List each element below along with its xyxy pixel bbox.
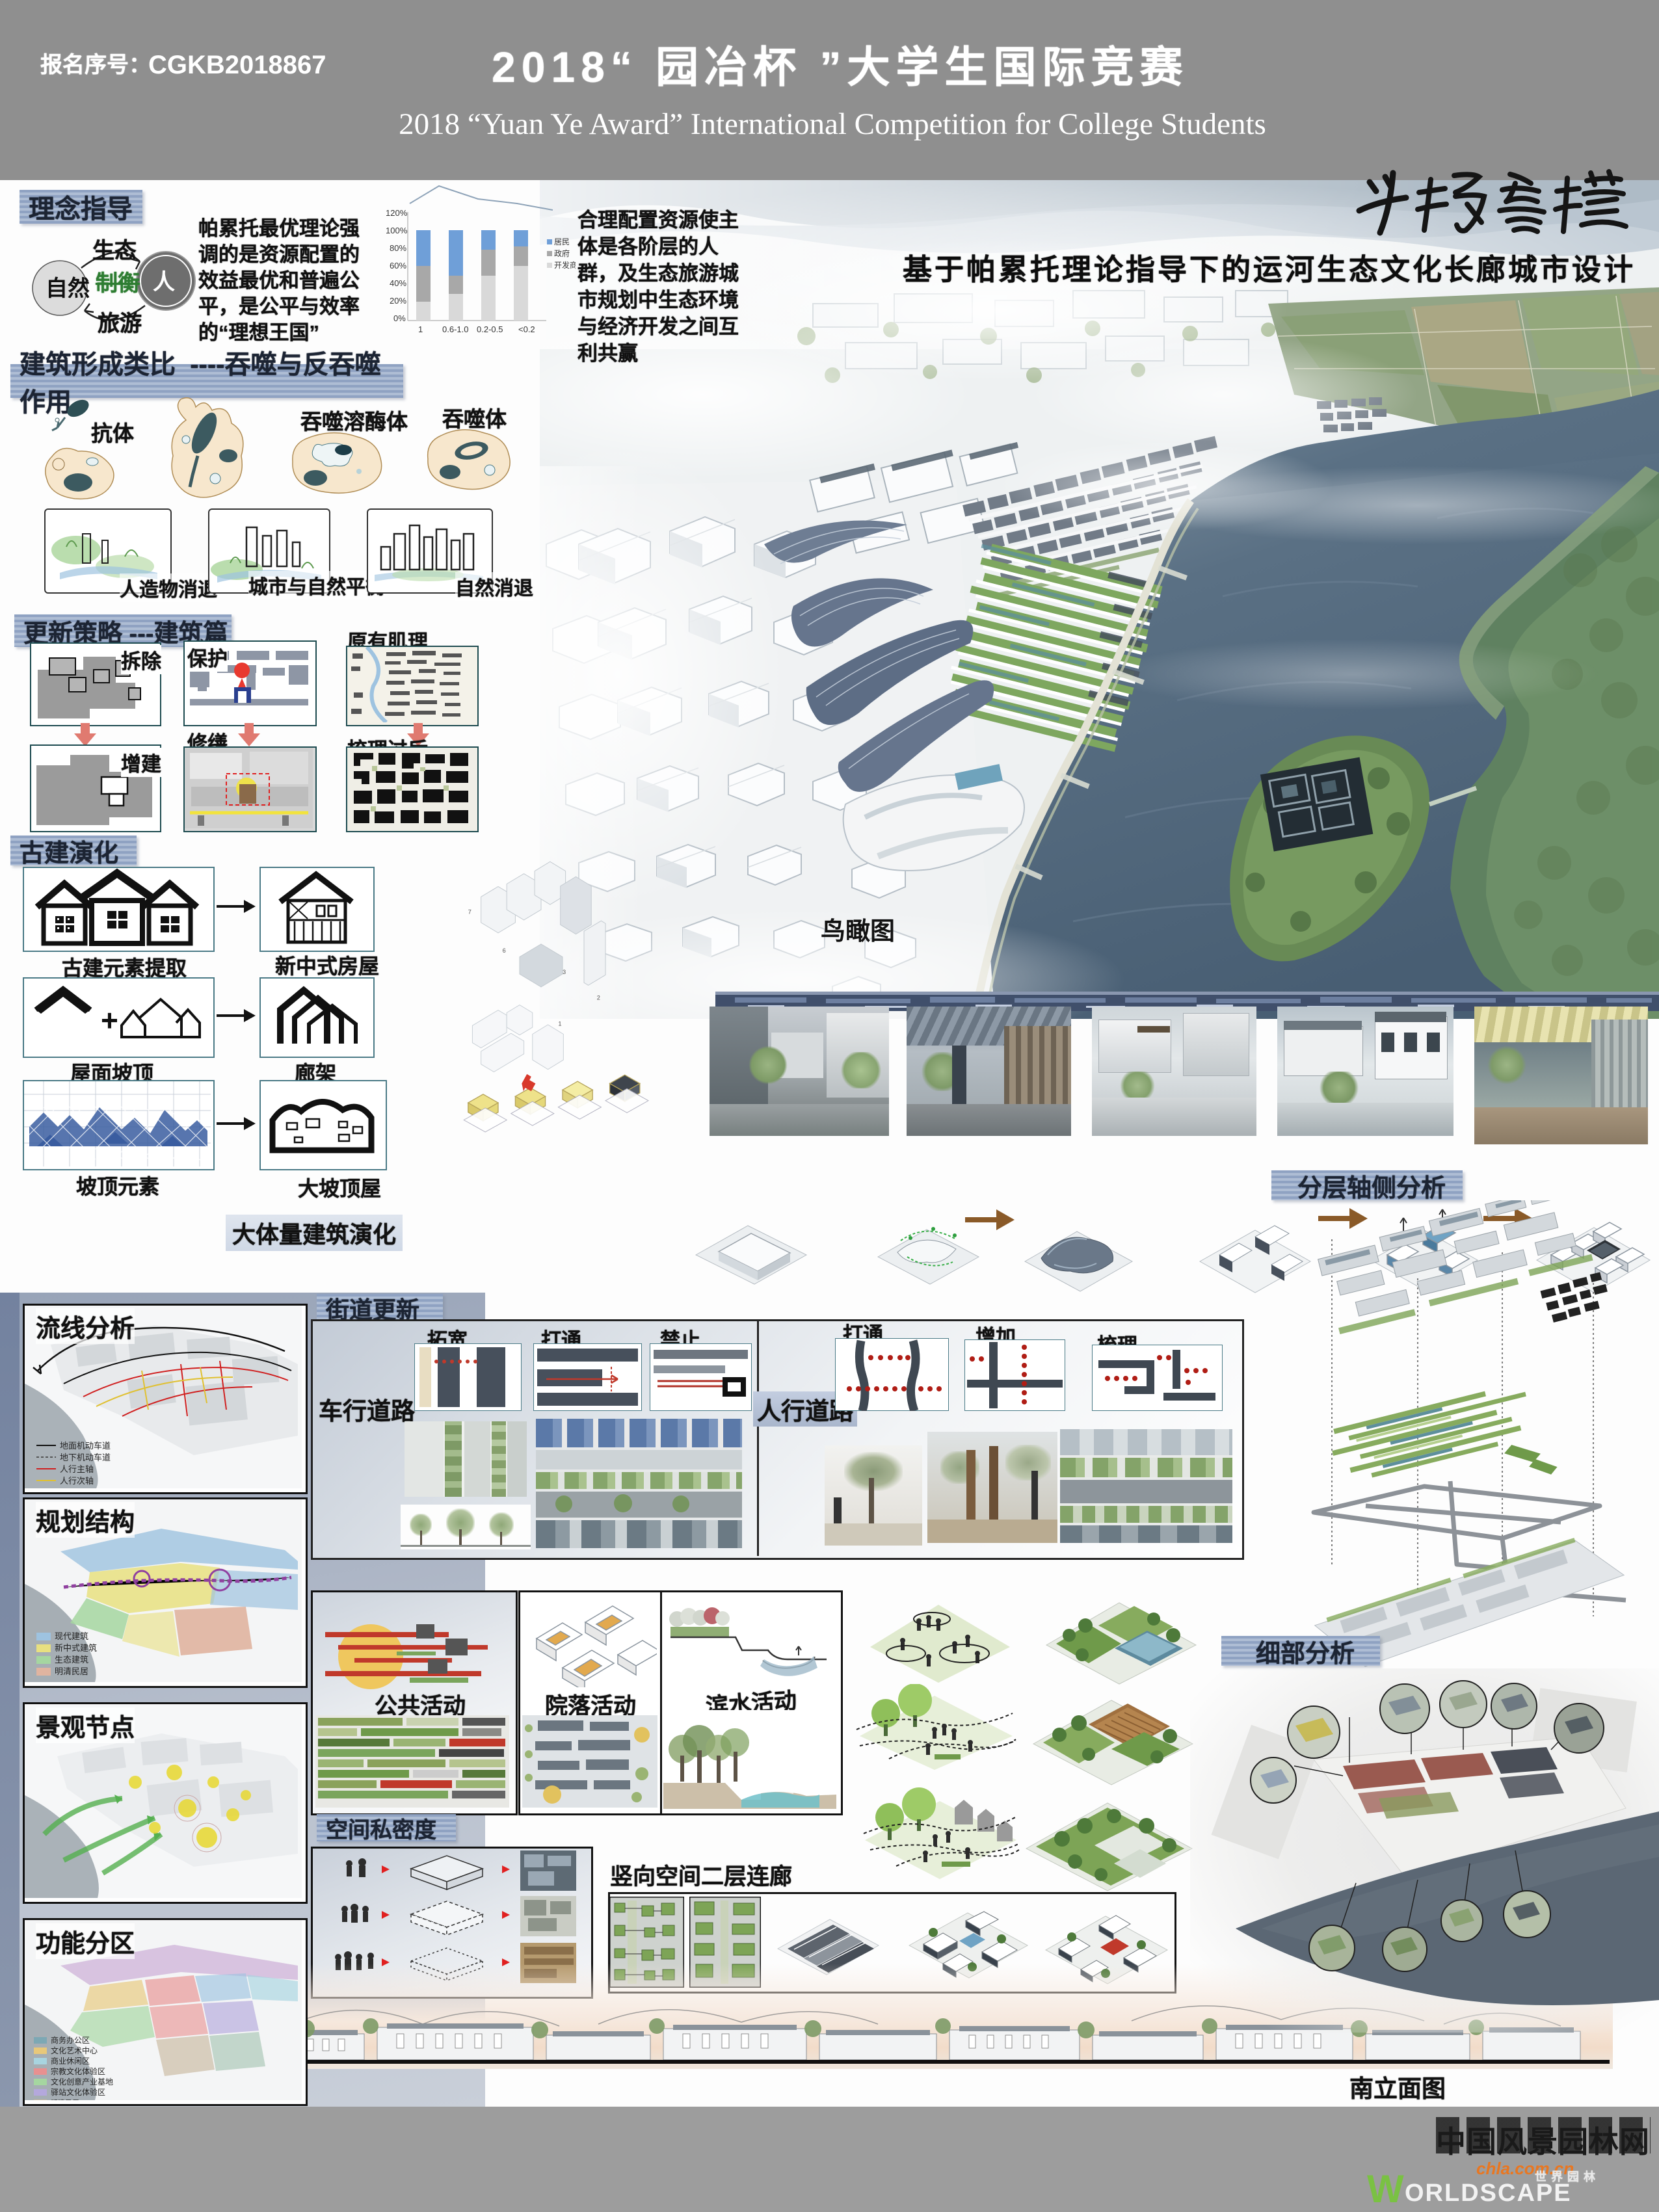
svg-text:商业休闲区: 商业休闲区 [51, 2056, 90, 2066]
svg-text:7: 7 [468, 909, 471, 915]
svg-text:0.6-1.0: 0.6-1.0 [442, 324, 468, 334]
svg-text:政府: 政府 [554, 248, 570, 258]
svg-text:60%: 60% [390, 261, 406, 270]
svg-text:地下机动车道: 地下机动车道 [60, 1453, 111, 1462]
svg-text:+: + [101, 1003, 118, 1037]
svg-text:生态建筑: 生态建筑 [55, 1655, 88, 1665]
svg-text:1: 1 [418, 324, 423, 334]
svg-text:人: 人 [153, 270, 175, 295]
svg-text:自然: 自然 [46, 276, 90, 301]
svg-text:明清民居: 明清民居 [55, 1666, 88, 1676]
svg-text:20%: 20% [390, 296, 406, 306]
svg-text:驿站文化体验区: 驿站文化体验区 [51, 2087, 105, 2097]
svg-text:地面机动车道: 地面机动车道 [60, 1441, 111, 1451]
svg-text:开发商: 开发商 [554, 260, 576, 270]
svg-text:新中式建筑: 新中式建筑 [55, 1643, 97, 1653]
svg-text:现代建筑: 现代建筑 [55, 1631, 88, 1641]
svg-text:商务办公区: 商务办公区 [51, 2035, 90, 2045]
svg-text:人行主轴: 人行主轴 [60, 1464, 94, 1474]
svg-text:<0.2: <0.2 [518, 324, 535, 334]
svg-text:3: 3 [563, 969, 566, 975]
svg-text:1: 1 [558, 1020, 561, 1027]
svg-text:居民: 居民 [554, 237, 570, 246]
svg-text:宗教文化体验区: 宗教文化体验区 [51, 2066, 105, 2076]
svg-text:0%: 0% [393, 313, 406, 323]
svg-text:100%: 100% [386, 226, 408, 235]
svg-text:鸟瞰图: 鸟瞰图 [821, 918, 895, 945]
svg-text:2: 2 [597, 995, 600, 1001]
svg-text:文化创意产业基地: 文化创意产业基地 [51, 2077, 113, 2087]
svg-text:0.2-0.5: 0.2-0.5 [477, 324, 503, 334]
svg-text:6: 6 [503, 947, 506, 954]
svg-text:40%: 40% [390, 278, 406, 288]
svg-text:80%: 80% [390, 243, 406, 253]
svg-text:120%: 120% [386, 208, 408, 218]
svg-text:人行次轴: 人行次轴 [60, 1476, 94, 1486]
svg-text:文化艺术中心: 文化艺术中心 [51, 2046, 98, 2055]
svg-text:明清民居: 明清民居 [51, 2099, 79, 2100]
